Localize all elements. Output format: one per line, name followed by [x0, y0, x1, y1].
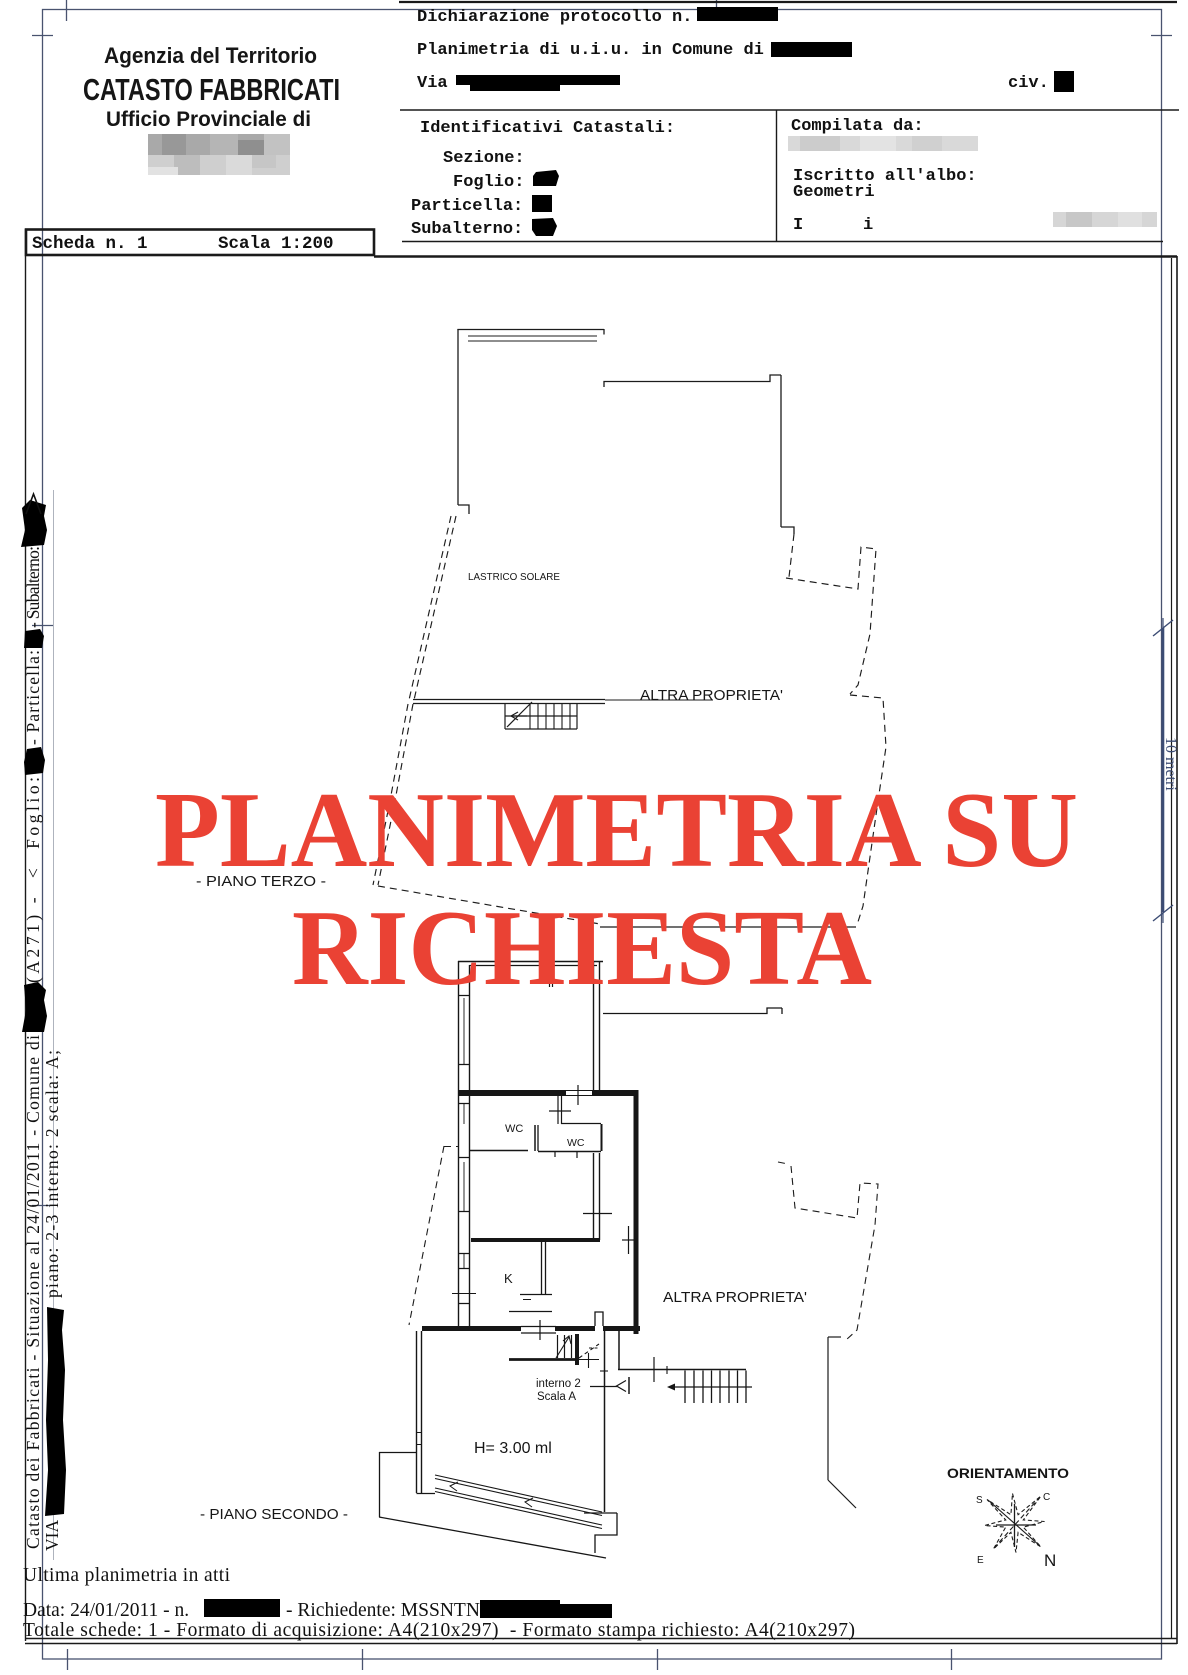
svg-text:H= 3.00 ml: H= 3.00 ml — [474, 1440, 552, 1457]
svg-text:- Richiedente: MSSNTN: - Richiedente: MSSNTN — [286, 1600, 480, 1621]
svg-text:Geometri: Geometri — [793, 183, 875, 202]
svg-text:VIA: VIA — [42, 1520, 62, 1551]
svg-text:N: N — [1044, 1551, 1056, 1570]
svg-text:PLANIMETRIA SU: PLANIMETRIA SU — [155, 771, 1078, 890]
svg-text:Identificativi Catastali:: Identificativi Catastali: — [420, 119, 675, 138]
svg-text:K: K — [504, 1271, 513, 1286]
svg-text:ORIENTAMENTO: ORIENTAMENTO — [947, 1466, 1069, 1481]
svg-text:Dichiarazione protocollo n.: Dichiarazione protocollo n. — [417, 8, 692, 27]
svg-text:WC: WC — [505, 1123, 523, 1135]
svg-text:Compilata da:: Compilata da: — [791, 117, 924, 136]
svg-text:Subalterno:: Subalterno: — [411, 220, 523, 239]
svg-text:Scala 1:200: Scala 1:200 — [218, 234, 334, 254]
svg-text:Data: 24/01/2011 - n.: Data: 24/01/2011 - n. — [23, 1600, 189, 1621]
svg-text:Agenzia del Territorio: Agenzia del Territorio — [104, 43, 317, 68]
svg-text:Foglio:: Foglio: — [453, 173, 524, 192]
svg-text:S: S — [976, 1495, 983, 1506]
svg-text:ALTRA PROPRIETA': ALTRA PROPRIETA' — [663, 1289, 807, 1306]
svg-text:civ.: civ. — [1008, 74, 1049, 93]
svg-text:Sezione:: Sezione: — [443, 149, 525, 168]
svg-text:C: C — [1043, 1492, 1050, 1503]
svg-text:Ultima planimetria in atti: Ultima planimetria in atti — [23, 1565, 231, 1586]
svg-text:piano: 2-3 interno: 2 scala: A: piano: 2-3 interno: 2 scala: A; — [42, 1050, 62, 1298]
svg-text:10 metri: 10 metri — [1162, 737, 1179, 791]
svg-text:E: E — [977, 1555, 984, 1566]
svg-text:Ufficio Provinciale di: Ufficio Provinciale di — [106, 108, 311, 131]
svg-text:- Subalterno:: - Subalterno: — [23, 546, 43, 628]
svg-text:- PIANO SECONDO -: - PIANO SECONDO - — [200, 1507, 348, 1523]
svg-text:Particella:: Particella: — [411, 197, 523, 216]
svg-text:i: i — [863, 216, 873, 235]
svg-text:Totale schede: 1 - Formato di: Totale schede: 1 - Formato di acquisizio… — [23, 1620, 855, 1641]
svg-text:I: I — [793, 216, 803, 235]
svg-text:interno 2: interno 2 — [536, 1378, 581, 1390]
svg-text:- Particella:: - Particella: — [23, 650, 43, 745]
svg-text:WC: WC — [567, 1137, 585, 1149]
svg-text:Catasto dei Fabbricati - Situa: Catasto dei Fabbricati - Situazione al 2… — [23, 1035, 43, 1549]
svg-text:Planimetria di u.i.u. in Comun: Planimetria di u.i.u. in Comune di — [417, 41, 764, 60]
svg-text:Via: Via — [417, 74, 448, 93]
svg-text:RICHIESTA: RICHIESTA — [292, 889, 872, 1008]
svg-text:LASTRICO SOLARE: LASTRICO SOLARE — [468, 571, 560, 583]
svg-text:Scheda n. 1: Scheda n. 1 — [32, 234, 148, 254]
svg-text:ALTRA PROPRIETA': ALTRA PROPRIETA' — [640, 687, 783, 704]
svg-text:CATASTO FABBRICATI: CATASTO FABBRICATI — [83, 72, 340, 107]
svg-text:Scala A: Scala A — [537, 1391, 576, 1403]
